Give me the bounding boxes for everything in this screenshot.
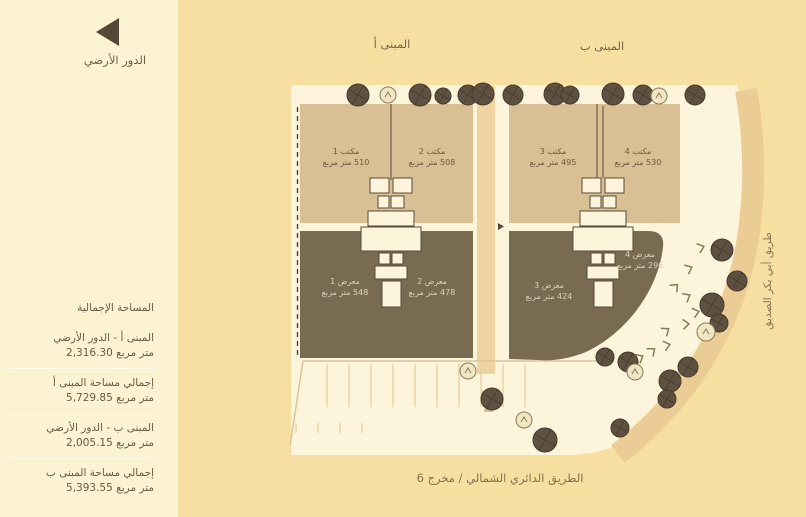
- shrub-icon: [627, 364, 643, 380]
- north-arrow-icon: [96, 18, 119, 46]
- stat-label: المبنى ب - الدور الأرضي: [6, 421, 154, 435]
- floor-title: الدور الأرضي: [40, 53, 190, 67]
- stat-label: المبنى أ - الدور الأرضي: [6, 331, 154, 345]
- stat-value: 5,729.85 متر مربع: [6, 391, 154, 405]
- stat-building-a-ground: المبنى أ - الدور الأرضي 2,316.30 متر مرب…: [4, 324, 156, 369]
- summary-header: المساحة الإجمالية: [4, 297, 156, 324]
- stat-label: إجمالي مساحة المبنى ب: [6, 466, 154, 480]
- stat-building-a-total: إجمالي مساحة المبنى أ 5,729.85 متر مربع: [4, 369, 156, 414]
- stat-value: 2,005.15 متر مربع: [6, 436, 154, 450]
- shrub-icon: [697, 323, 715, 341]
- stat-building-b-total: إجمالي مساحة المبنى ب 5,393.55 متر مربع: [4, 459, 156, 504]
- stat-value: 5,393.55 متر مربع: [6, 481, 154, 495]
- area-summary: المساحة الإجمالية المبنى أ - الدور الأرض…: [4, 297, 156, 504]
- shrub-icon: [460, 363, 476, 379]
- central-driveway: [477, 86, 495, 374]
- slide: الدور الأرضي المساحة الإجمالية المبنى أ …: [0, 0, 806, 517]
- stat-building-b-ground: المبنى ب - الدور الأرضي 2,005.15 متر مرب…: [4, 414, 156, 459]
- shrub-icon: [516, 412, 532, 428]
- stat-value: 2,316.30 متر مربع: [6, 346, 154, 360]
- shrub-icon: [651, 88, 667, 104]
- shrub-icon: [380, 87, 396, 103]
- info-panel: الدور الأرضي المساحة الإجمالية المبنى أ …: [0, 0, 178, 517]
- stat-label: إجمالي مساحة المبنى أ: [6, 376, 154, 390]
